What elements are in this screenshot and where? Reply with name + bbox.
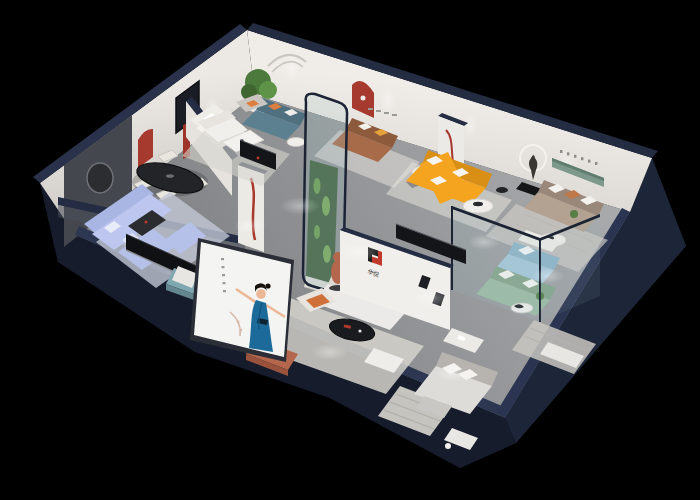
promo-poster (190, 238, 294, 362)
niche-figurine (361, 96, 366, 101)
table-centerpiece (166, 174, 174, 178)
desk-chair (445, 443, 451, 449)
woman-face (256, 289, 266, 299)
floor-plant (570, 210, 578, 218)
isometric-floorplan: 华悦 (0, 0, 700, 500)
showroom-render: 华悦 (0, 0, 700, 500)
round-side-table (287, 138, 305, 147)
console-logo-dot (257, 157, 260, 160)
round-wall-mirror (87, 163, 113, 193)
black-side-table (496, 187, 508, 193)
